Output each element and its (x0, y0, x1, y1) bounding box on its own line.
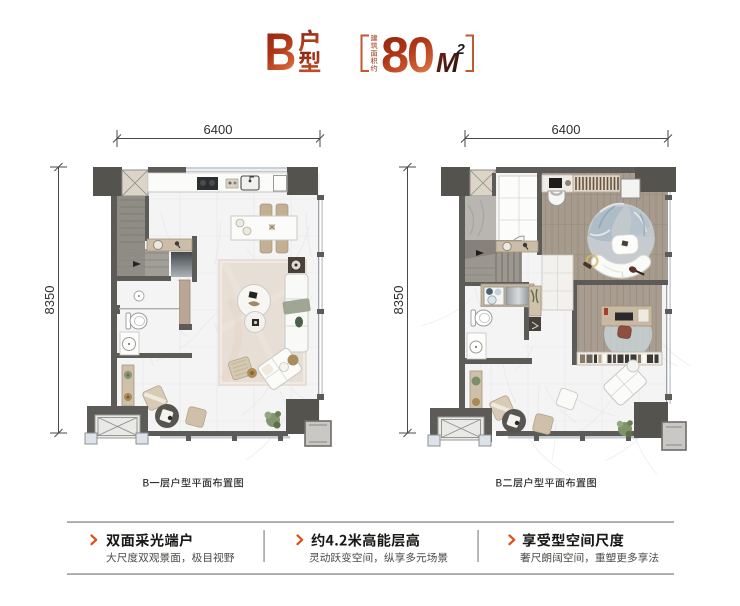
svg-text:8350: 8350 (42, 286, 57, 315)
svg-text:6400: 6400 (552, 122, 581, 137)
svg-text:2: 2 (456, 41, 466, 58)
svg-text:80: 80 (381, 26, 434, 83)
svg-text:8350: 8350 (391, 286, 406, 315)
svg-text:6400: 6400 (204, 122, 233, 137)
svg-text:B: B (264, 23, 296, 81)
